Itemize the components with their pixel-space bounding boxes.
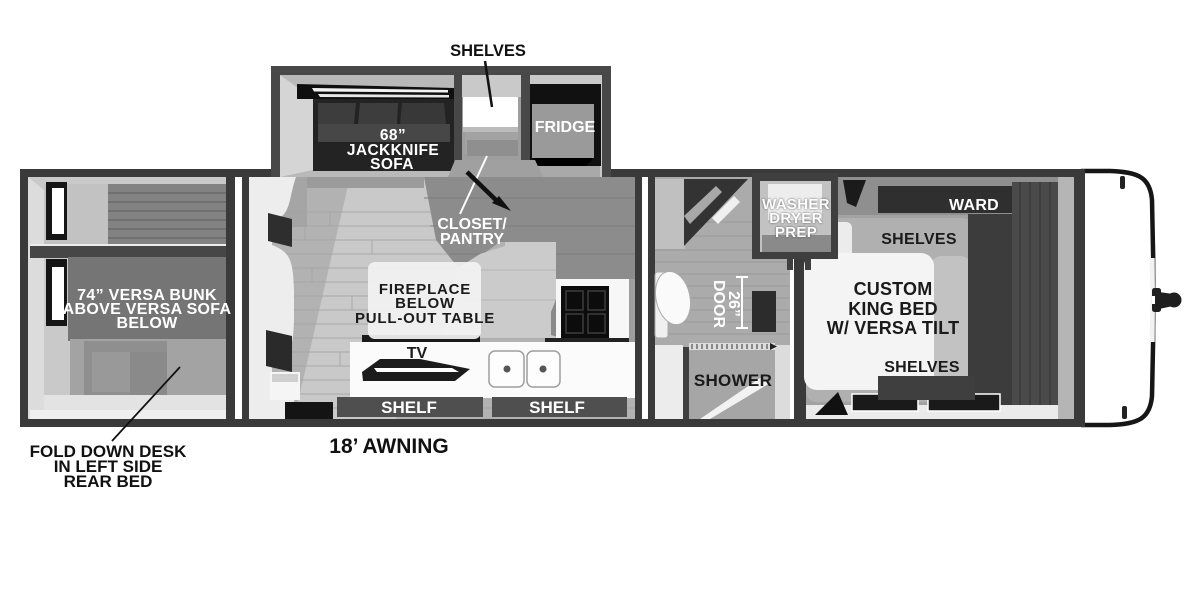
svg-text:SHELF: SHELF	[529, 398, 585, 417]
svg-text:18’ AWNING: 18’ AWNING	[329, 435, 448, 458]
svg-text:SHELF: SHELF	[381, 398, 437, 417]
svg-text:REAR BED: REAR BED	[64, 472, 153, 491]
svg-text:PANTRY: PANTRY	[440, 231, 504, 248]
svg-text:DOOR: DOOR	[710, 280, 727, 328]
svg-text:SOFA: SOFA	[370, 156, 414, 173]
svg-text:WARD: WARD	[949, 197, 999, 214]
svg-text:SHELVES: SHELVES	[450, 42, 526, 60]
svg-text:SHELVES: SHELVES	[884, 359, 960, 376]
svg-text:SHOWER: SHOWER	[694, 371, 772, 390]
svg-text:KING BED: KING BED	[848, 299, 938, 319]
svg-text:FRIDGE: FRIDGE	[535, 119, 596, 136]
svg-text:PREP: PREP	[775, 224, 817, 241]
svg-text:W/ VERSA TILT: W/ VERSA TILT	[827, 318, 960, 338]
svg-text:TV: TV	[407, 345, 428, 362]
svg-text:CUSTOM: CUSTOM	[854, 279, 933, 299]
svg-text:PULL-OUT TABLE: PULL-OUT TABLE	[355, 310, 495, 327]
svg-text:SHELVES: SHELVES	[881, 231, 957, 248]
svg-text:BELOW: BELOW	[116, 315, 178, 332]
